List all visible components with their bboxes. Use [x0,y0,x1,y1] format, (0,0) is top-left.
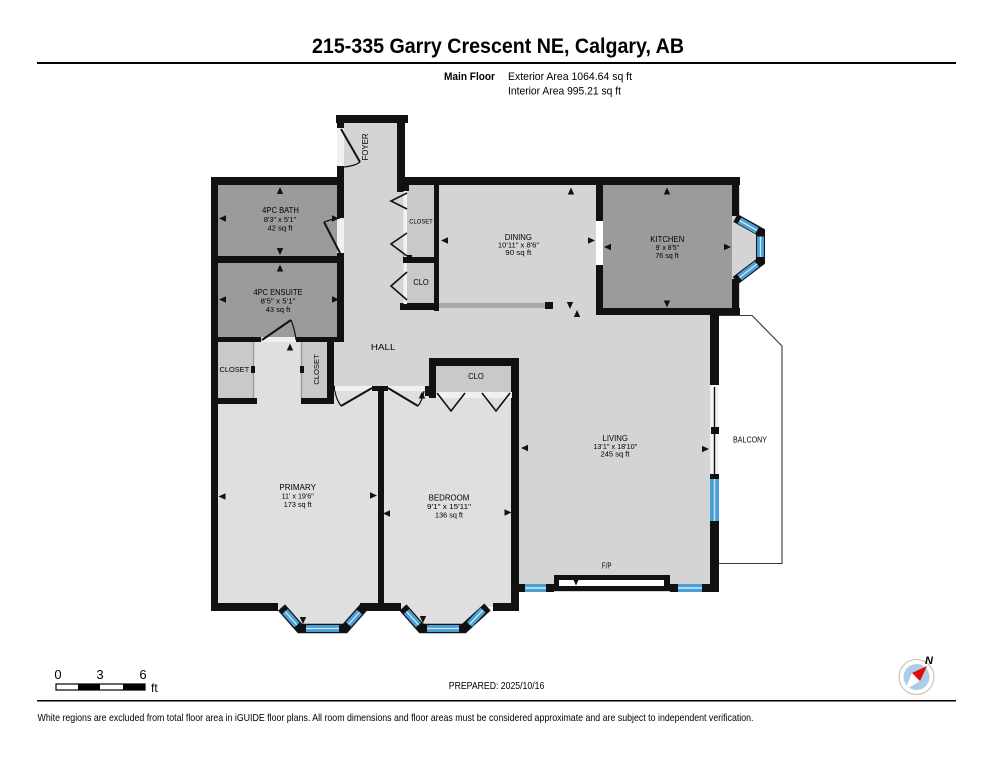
svg-text:F/P: F/P [602,562,612,571]
svg-text:6: 6 [139,667,146,682]
svg-text:90 sq ft: 90 sq ft [505,248,532,257]
svg-text:Exterior Area 1064.64 sq ft: Exterior Area 1064.64 sq ft [508,71,632,83]
svg-text:136 sq ft: 136 sq ft [435,511,464,520]
svg-text:Interior Area 995.21 sq ft: Interior Area 995.21 sq ft [508,86,621,98]
svg-text:42 sq ft: 42 sq ft [268,223,294,232]
svg-text:CLOSET: CLOSET [409,219,433,226]
svg-text:CLO: CLO [468,372,484,381]
svg-text:PREPARED: 2025/10/16: PREPARED: 2025/10/16 [449,680,545,692]
svg-text:CLOSET: CLOSET [312,354,321,385]
svg-text:White regions are excluded fro: White regions are excluded from total fl… [38,713,754,724]
svg-text:76 sq ft: 76 sq ft [655,251,679,260]
svg-text:4PC BATH: 4PC BATH [262,206,299,215]
svg-text:245 sq ft: 245 sq ft [601,450,631,459]
svg-text:215-335 Garry Crescent NE, Cal: 215-335 Garry Crescent NE, Calgary, AB [312,34,684,58]
svg-text:CLOSET: CLOSET [220,365,250,374]
svg-text:BALCONY: BALCONY [733,436,768,445]
svg-text:Main Floor: Main Floor [444,71,496,83]
svg-text:N: N [925,655,934,667]
svg-text:CLO: CLO [413,278,429,287]
svg-text:43 sq ft: 43 sq ft [266,305,292,314]
svg-text:FOYER: FOYER [361,133,370,160]
svg-text:ft: ft [151,681,158,695]
svg-text:HALL: HALL [371,343,396,352]
svg-text:3: 3 [96,667,103,682]
svg-text:0: 0 [54,667,61,682]
svg-text:173 sq ft: 173 sq ft [284,500,313,509]
